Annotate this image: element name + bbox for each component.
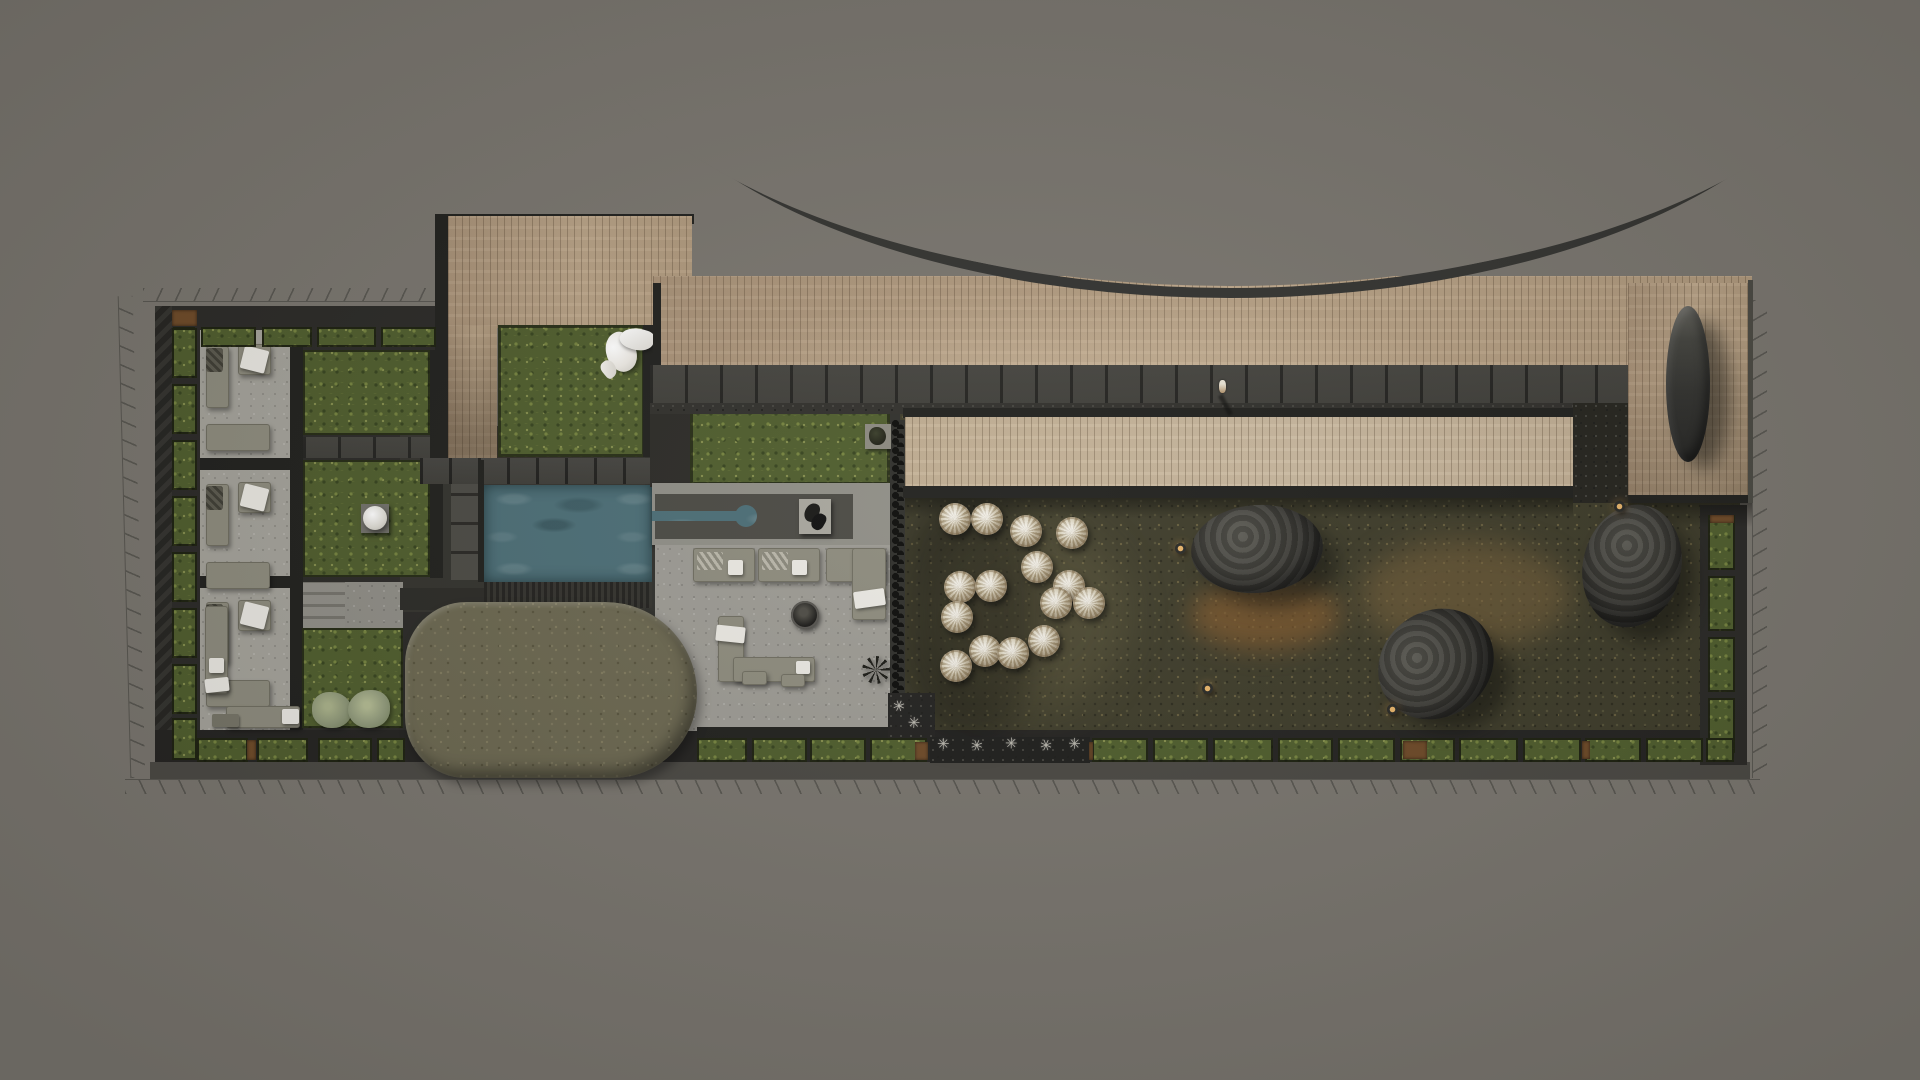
masterplan-canvas: ✳✳✳✳✳✳✳	[0, 0, 1920, 1080]
vignette-overlay	[0, 0, 1920, 1080]
